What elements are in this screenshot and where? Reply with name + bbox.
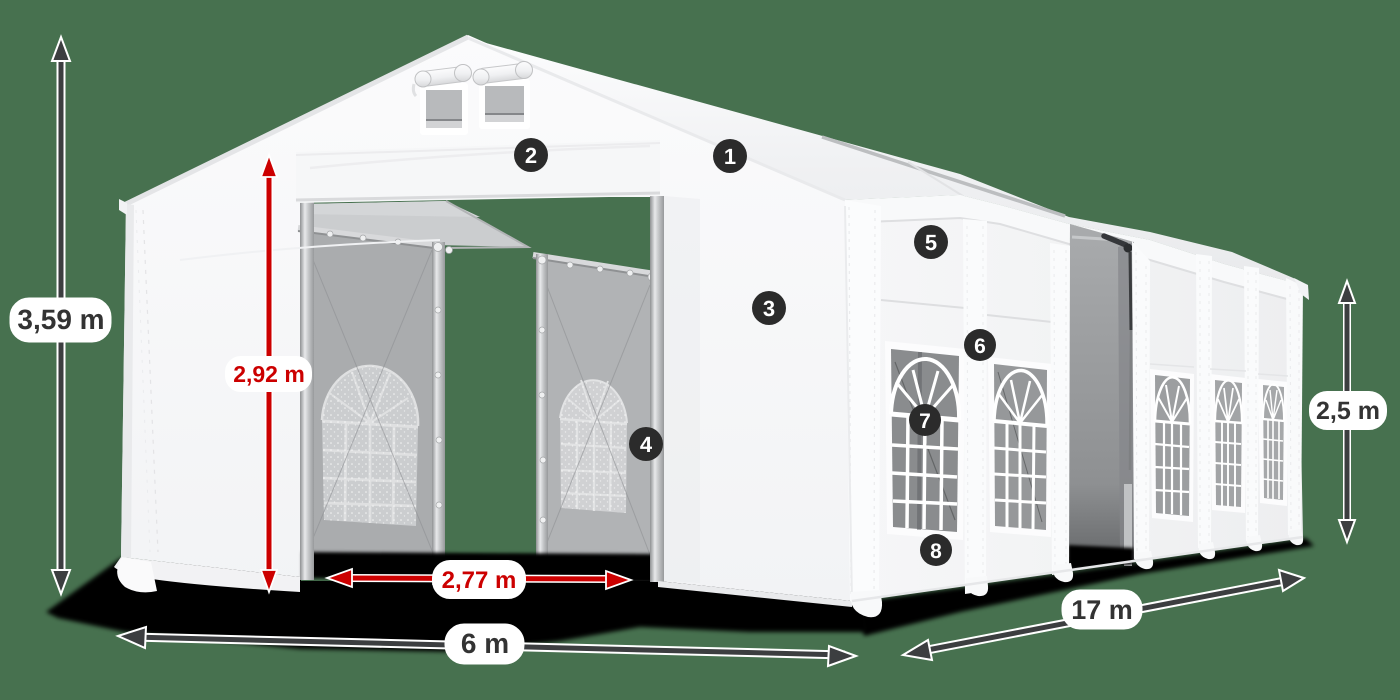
svg-text:6 m: 6 m [461, 628, 509, 659]
svg-text:5: 5 [925, 230, 937, 255]
svg-text:4: 4 [640, 432, 653, 457]
svg-text:7: 7 [919, 410, 931, 433]
svg-text:8: 8 [930, 540, 942, 563]
svg-text:2,77 m: 2,77 m [442, 567, 517, 594]
svg-text:2,5 m: 2,5 m [1316, 397, 1380, 425]
svg-text:3,59 m: 3,59 m [17, 304, 104, 335]
svg-text:3: 3 [763, 296, 775, 321]
svg-text:2: 2 [525, 143, 537, 168]
svg-text:17 m: 17 m [1071, 595, 1133, 625]
svg-text:6: 6 [974, 335, 986, 358]
svg-text:1: 1 [724, 144, 736, 169]
svg-text:2,92 m: 2,92 m [233, 361, 305, 387]
